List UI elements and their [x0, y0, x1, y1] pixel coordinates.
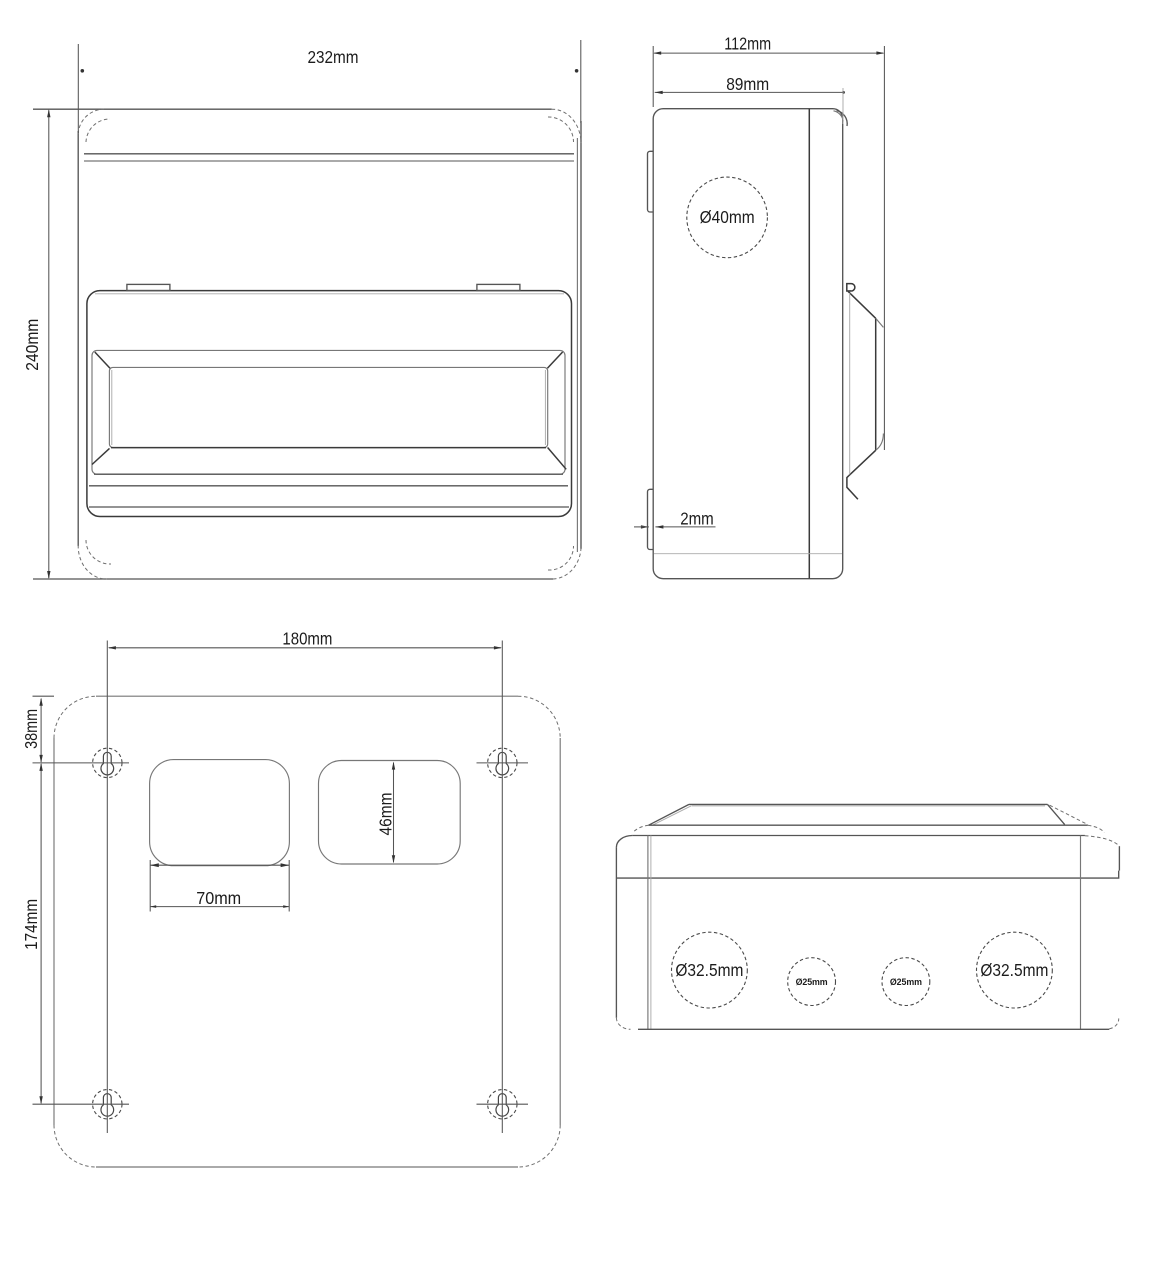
svg-text:174mm: 174mm: [21, 899, 41, 950]
svg-text:46mm: 46mm: [375, 793, 395, 836]
svg-text:Ø32.5mm: Ø32.5mm: [980, 960, 1048, 980]
svg-text:Ø25mm: Ø25mm: [890, 977, 922, 988]
svg-text:112mm: 112mm: [724, 33, 771, 53]
svg-text:89mm: 89mm: [726, 74, 769, 94]
svg-text:2mm: 2mm: [680, 508, 714, 528]
svg-text:Ø32.5mm: Ø32.5mm: [675, 960, 743, 980]
svg-text:Ø25mm: Ø25mm: [796, 977, 828, 988]
svg-text:180mm: 180mm: [282, 628, 332, 648]
svg-text:240mm: 240mm: [22, 319, 42, 371]
svg-text:38mm: 38mm: [21, 709, 41, 749]
svg-text:232mm: 232mm: [308, 47, 359, 67]
svg-text:Ø40mm: Ø40mm: [700, 207, 755, 227]
svg-text:70mm: 70mm: [196, 888, 241, 908]
